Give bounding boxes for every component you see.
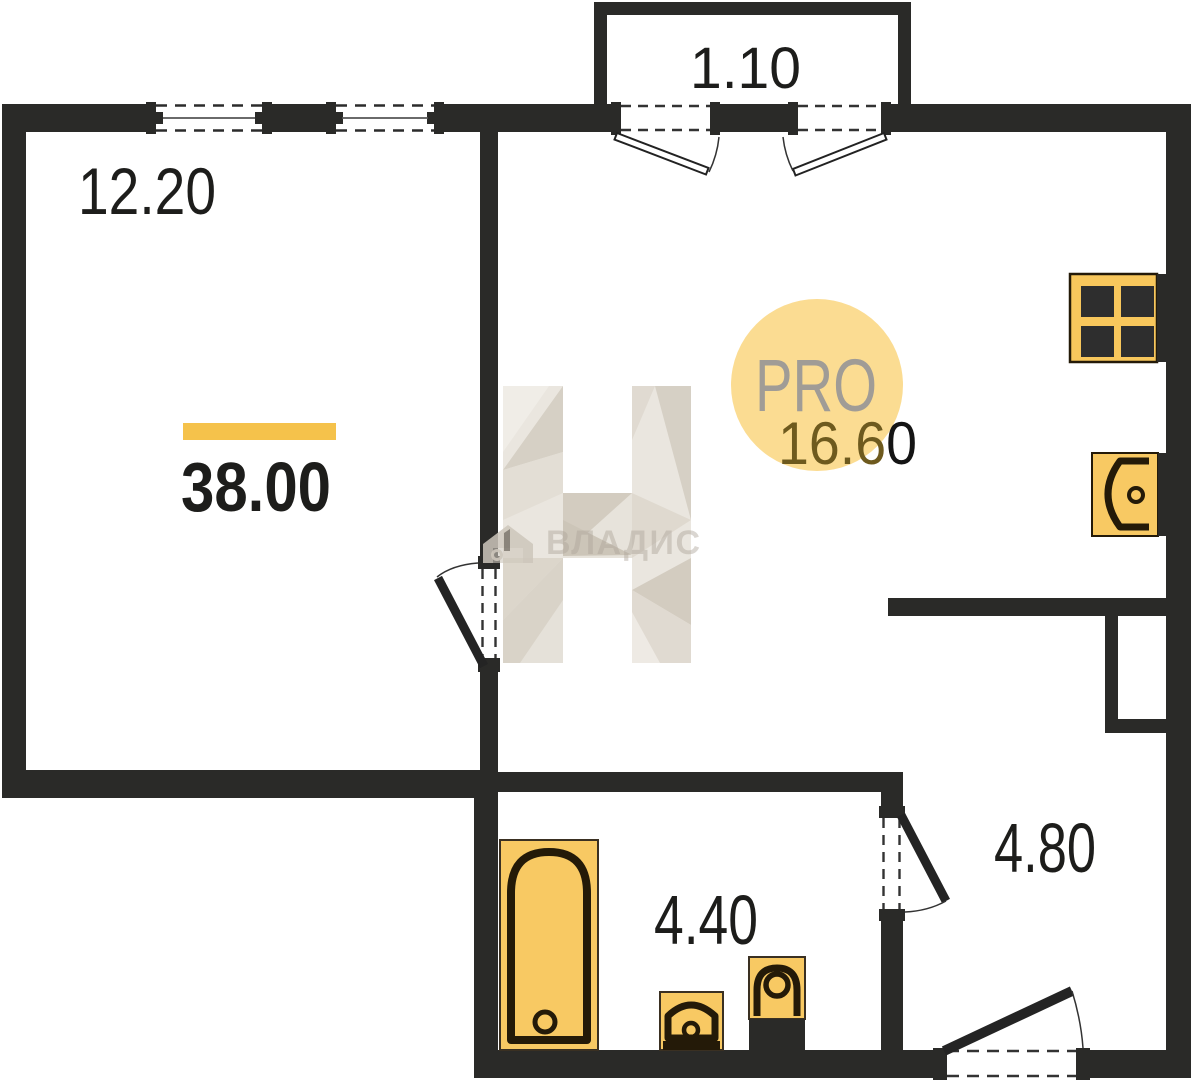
svg-text:1.10: 1.10 <box>690 36 801 101</box>
svg-text:16.60: 16.60 <box>778 410 917 477</box>
svg-text:38.00: 38.00 <box>181 448 331 526</box>
svg-text:12.20: 12.20 <box>78 154 216 228</box>
svg-text:4.40: 4.40 <box>654 881 758 959</box>
svg-text:4.80: 4.80 <box>994 809 1096 887</box>
svg-text:ВЛАДИС: ВЛАДИС <box>546 524 707 562</box>
